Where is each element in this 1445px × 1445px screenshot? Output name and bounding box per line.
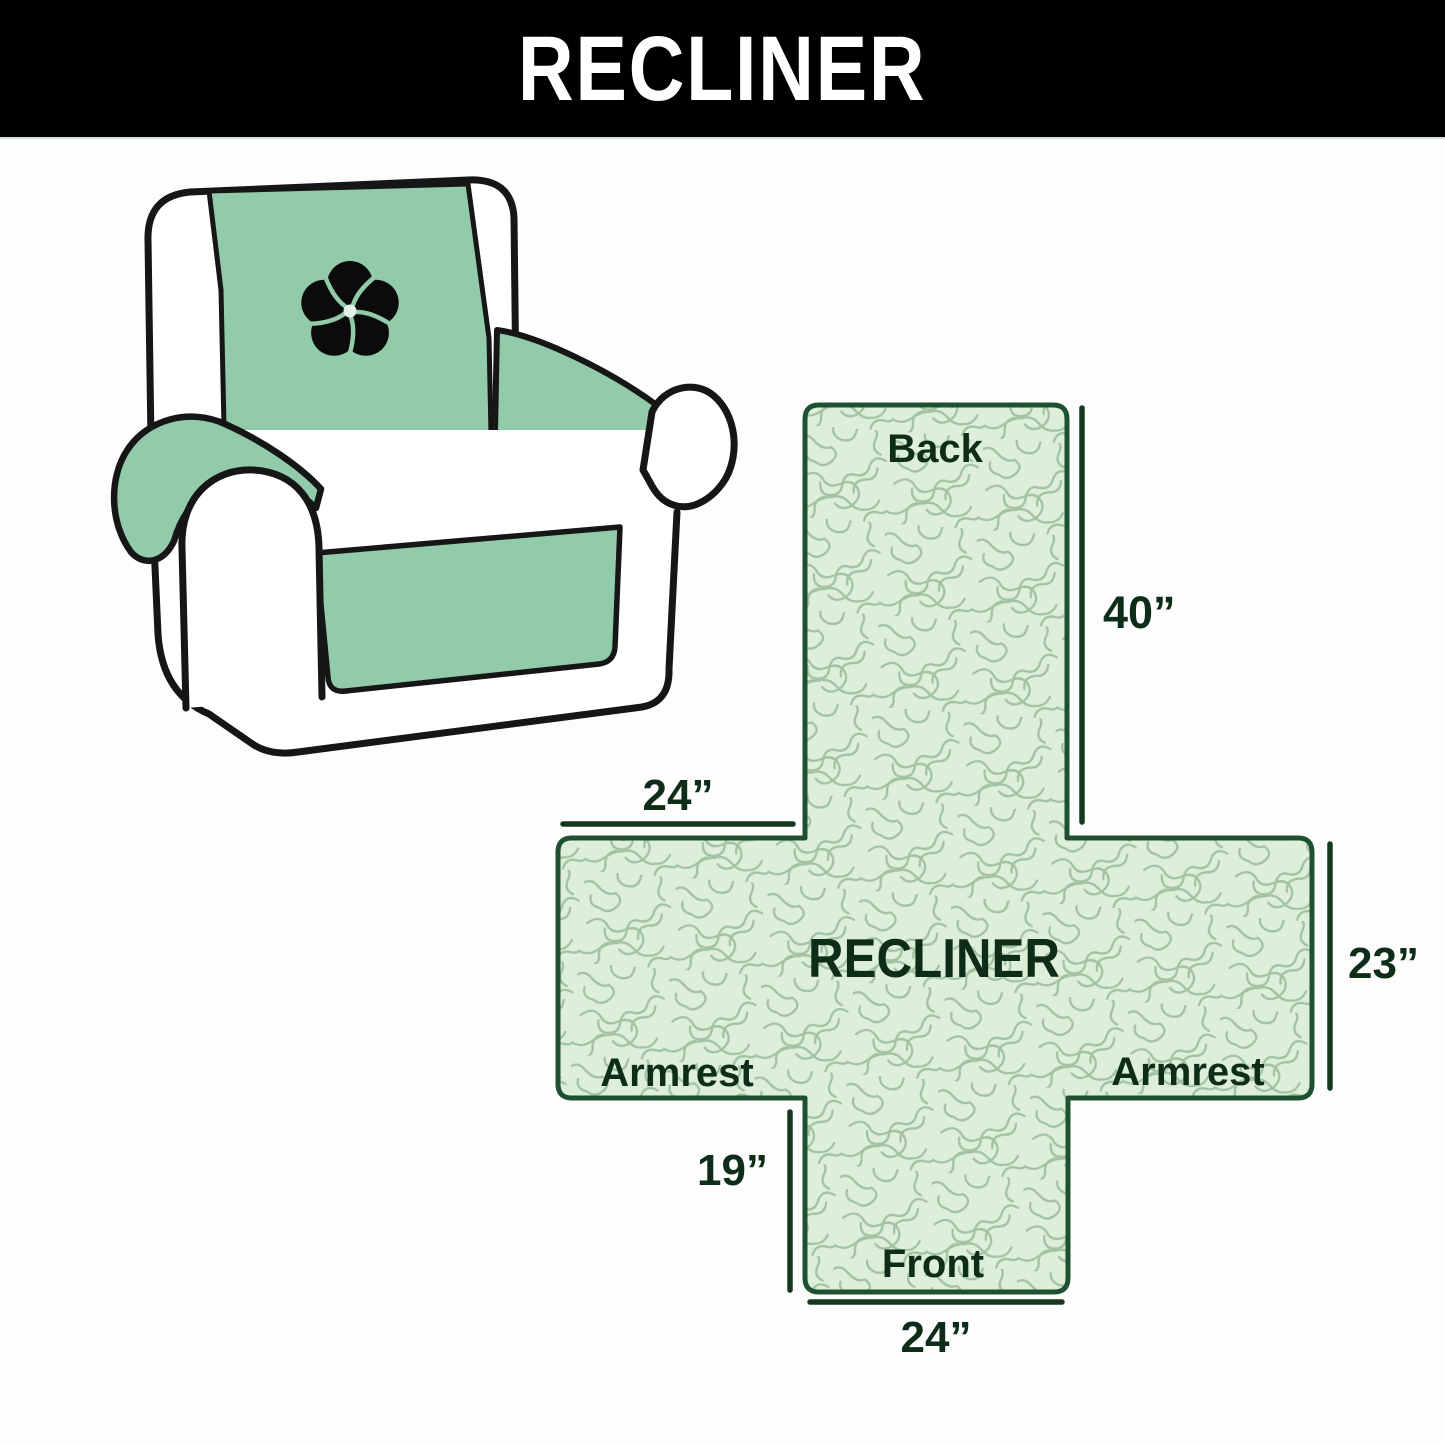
dim-front-flap-height: 19” [697, 1146, 768, 1195]
label-armrest-right: Armrest [1111, 1050, 1264, 1094]
cover-layout-diagram: Back 40” 24” RECLINER Armrest Armrest 23… [540, 390, 1430, 1390]
pinwheel-center-dot [344, 305, 357, 318]
label-front: Front [882, 1242, 984, 1286]
dim-front-width: 24” [901, 1313, 972, 1362]
page: RECLINER [0, 0, 1445, 1445]
dim-side-height: 23” [1348, 939, 1419, 988]
label-center-recliner: RECLINER [808, 927, 1060, 989]
dim-armrest-top-width: 24” [643, 771, 714, 820]
dim-back-height: 40” [1103, 587, 1176, 638]
header-banner: RECLINER [0, 0, 1445, 139]
chair-left-arm-roll [182, 470, 322, 708]
label-back: Back [887, 427, 983, 471]
page-title: RECLINER [518, 23, 926, 115]
cover-cross-shape [558, 405, 1312, 1292]
label-armrest-left: Armrest [600, 1051, 753, 1095]
